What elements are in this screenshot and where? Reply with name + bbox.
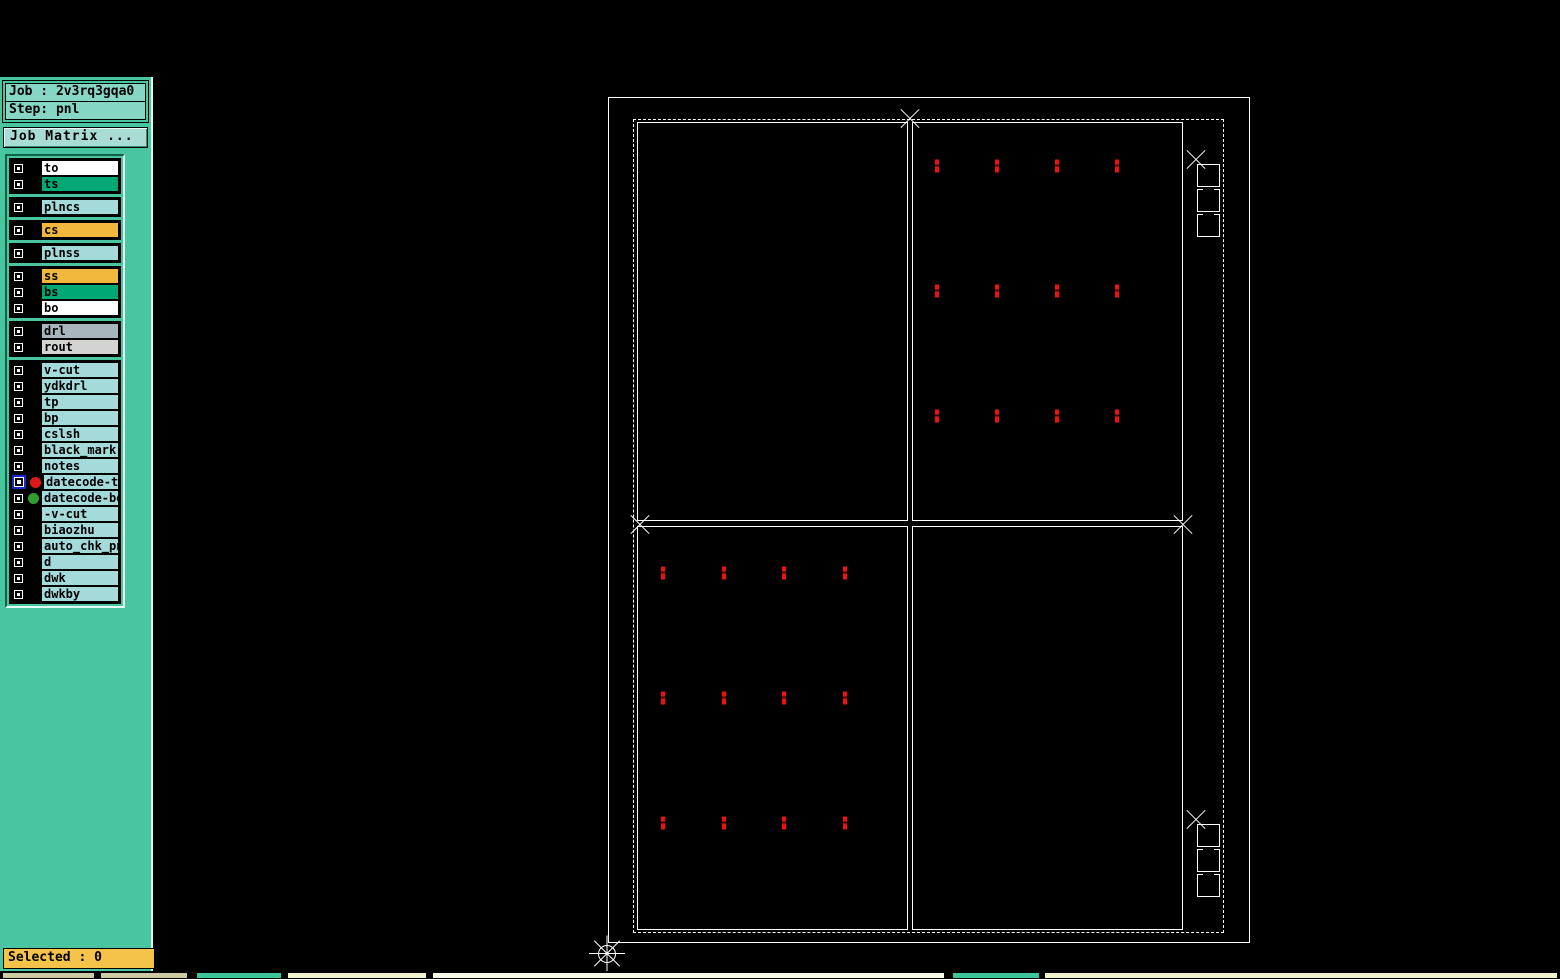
- layer-label[interactable]: to: [42, 161, 118, 175]
- layer-row-cslsh[interactable]: cslsh: [11, 426, 119, 442]
- layer-label[interactable]: biaozhu: [42, 523, 118, 537]
- fiducial-mark: [1055, 285, 1059, 298]
- bottom-strip: [0, 971, 1560, 979]
- layer-row-bs[interactable]: bs: [11, 284, 119, 300]
- layer-row-cs[interactable]: cs: [11, 222, 119, 238]
- layer-row-ss[interactable]: ss: [11, 268, 119, 284]
- coupon-square: [1197, 849, 1220, 872]
- clipped-toolbar-box[interactable]: [952, 972, 1040, 979]
- layer-checkbox[interactable]: [13, 271, 24, 282]
- layer-row-rout[interactable]: rout: [11, 339, 119, 355]
- layer-checkbox[interactable]: [13, 557, 24, 568]
- layer-row-v-cut[interactable]: v-cut: [11, 362, 119, 378]
- step-field: Step: pnl: [5, 101, 146, 120]
- layer-group: drlrout: [9, 321, 121, 357]
- layer-row-drl[interactable]: drl: [11, 323, 119, 339]
- layer-label[interactable]: notes: [42, 459, 118, 473]
- layer-checkbox[interactable]: [13, 179, 24, 190]
- clipped-toolbar-box[interactable]: [1044, 972, 1558, 979]
- fiducial-mark: [995, 160, 999, 173]
- layer-checkbox[interactable]: [13, 509, 24, 520]
- origin-marker-icon: [589, 936, 625, 972]
- alignment-star-icon: [1170, 512, 1196, 538]
- coupon-stack: [1197, 824, 1220, 899]
- fiducial-mark: [1055, 160, 1059, 173]
- fiducial-mark: [843, 567, 847, 580]
- sub-panel-outline: [912, 526, 1183, 930]
- layer-checkbox[interactable]: [13, 202, 24, 213]
- layer-checkbox[interactable]: [13, 445, 24, 456]
- clipped-toolbar-box[interactable]: [196, 972, 282, 979]
- fiducial-mark: [661, 567, 665, 580]
- layer-label[interactable]: tp: [42, 395, 118, 409]
- fiducial-mark: [661, 692, 665, 705]
- layer-label[interactable]: ss: [42, 269, 118, 283]
- layer-checkbox[interactable]: [13, 429, 24, 440]
- layer-row-plncs[interactable]: plncs: [11, 199, 119, 215]
- layer-label[interactable]: dwk: [42, 571, 118, 585]
- sidebar: Job : 2v3rq3gqa0 Step: pnl Job Matrix ..…: [0, 77, 153, 971]
- layer-label[interactable]: -v-cut: [42, 507, 118, 521]
- layer-row-to[interactable]: to: [11, 160, 119, 176]
- clipped-toolbar-box[interactable]: [287, 972, 427, 979]
- coupon-stack: [1197, 164, 1220, 239]
- layer-status-dot-slot: [26, 477, 44, 488]
- layer-group: plncs: [9, 197, 121, 217]
- layer-checkbox[interactable]: [13, 397, 24, 408]
- job-field: Job : 2v3rq3gqa0: [5, 83, 146, 102]
- coupon-square: [1197, 214, 1220, 237]
- coupon-square: [1197, 874, 1220, 897]
- layer-label[interactable]: ydkdrl: [42, 379, 118, 393]
- coupon-square: [1197, 189, 1220, 212]
- job-matrix-button[interactable]: Job Matrix ...: [3, 127, 148, 148]
- fiducial-mark: [935, 160, 939, 173]
- layer-checkbox[interactable]: [13, 365, 24, 376]
- fiducial-mark: [995, 410, 999, 423]
- alignment-star-icon: [897, 106, 923, 132]
- layer-row-ydkdrl[interactable]: ydkdrl: [11, 378, 119, 394]
- layer-status-dot-slot: [24, 493, 42, 504]
- layer-row-d[interactable]: d: [11, 554, 119, 570]
- layer-label[interactable]: black_mark: [42, 443, 118, 457]
- layer-row-ts[interactable]: ts: [11, 176, 119, 192]
- layer-group: v-cutydkdrltpbpcslshblack_marknotesdatec…: [9, 360, 121, 604]
- coupon-square: [1197, 164, 1220, 187]
- fiducial-mark: [782, 692, 786, 705]
- layer-label[interactable]: plncs: [42, 200, 118, 214]
- layer-checkbox[interactable]: [13, 461, 24, 472]
- layer-row-black_mark[interactable]: black_mark: [11, 442, 119, 458]
- selected-count: Selected : 0: [3, 948, 155, 969]
- sub-panel-outline: [637, 526, 908, 930]
- layer-checkbox[interactable]: [13, 326, 24, 337]
- fiducial-mark: [722, 567, 726, 580]
- fiducial-mark: [1115, 160, 1119, 173]
- layer-row-datecode-bo[interactable]: datecode-bo: [11, 490, 119, 506]
- layer-group: tots: [9, 158, 121, 194]
- layer-label[interactable]: bo: [42, 301, 118, 315]
- layer-label[interactable]: datecode-bo: [42, 491, 118, 505]
- layer-row-bp[interactable]: bp: [11, 410, 119, 426]
- layer-checkbox[interactable]: [13, 303, 24, 314]
- alignment-star-icon: [627, 512, 653, 538]
- fiducial-mark: [935, 410, 939, 423]
- layer-status-dot: [30, 477, 41, 488]
- layer-group: plnss: [9, 243, 121, 263]
- layer-row--v-cut[interactable]: -v-cut: [11, 506, 119, 522]
- clipped-toolbar-box[interactable]: [100, 972, 188, 979]
- layer-row-auto_chk_pnl[interactable]: auto_chk_pnl: [11, 538, 119, 554]
- layer-checkbox[interactable]: [13, 541, 24, 552]
- layer-checkbox[interactable]: [13, 493, 24, 504]
- layer-checkbox[interactable]: [13, 225, 24, 236]
- fiducial-mark: [722, 817, 726, 830]
- layer-row-dwkby[interactable]: dwkby: [11, 586, 119, 602]
- layer-checkbox[interactable]: [13, 342, 24, 353]
- layer-row-bo[interactable]: bo: [11, 300, 119, 316]
- fiducial-mark: [782, 567, 786, 580]
- fiducial-mark: [782, 817, 786, 830]
- layer-checkbox[interactable]: [13, 573, 24, 584]
- coupon-square: [1197, 824, 1220, 847]
- layer-checkbox[interactable]: [13, 589, 24, 600]
- drawing-canvas[interactable]: [0, 0, 1560, 979]
- sub-panel-outline: [637, 122, 908, 521]
- layer-label[interactable]: dwkby: [42, 587, 118, 601]
- layer-label[interactable]: v-cut: [42, 363, 118, 377]
- layer-label[interactable]: auto_chk_pnl: [42, 539, 118, 553]
- layer-checkbox[interactable]: [12, 475, 26, 489]
- layer-row-biaozhu[interactable]: biaozhu: [11, 522, 119, 538]
- layer-group: ssbsbo: [9, 266, 121, 318]
- clipped-toolbar-box[interactable]: [2, 972, 95, 979]
- layer-label[interactable]: bp: [42, 411, 118, 425]
- layer-label[interactable]: ts: [42, 177, 118, 191]
- layer-list: totsplncscsplnssssbsbodrlroutv-cutydkdrl…: [5, 154, 125, 608]
- fiducial-mark: [995, 285, 999, 298]
- sub-panel-outline: [912, 122, 1183, 521]
- layer-checkbox[interactable]: [13, 287, 24, 298]
- fiducial-mark: [843, 817, 847, 830]
- fiducial-mark: [722, 692, 726, 705]
- layer-label[interactable]: drl: [42, 324, 118, 338]
- layer-label[interactable]: cslsh: [42, 427, 118, 441]
- layer-row-dwk[interactable]: dwk: [11, 570, 119, 586]
- fiducial-mark: [935, 285, 939, 298]
- layer-label[interactable]: d: [42, 555, 118, 569]
- fiducial-mark: [1055, 410, 1059, 423]
- layer-row-notes[interactable]: notes: [11, 458, 119, 474]
- layer-label[interactable]: bs: [42, 285, 118, 299]
- layer-checkbox[interactable]: [13, 163, 24, 174]
- layer-checkbox[interactable]: [13, 248, 24, 259]
- layer-row-tp[interactable]: tp: [11, 394, 119, 410]
- clipped-toolbar-box[interactable]: [432, 972, 945, 979]
- fiducial-mark: [661, 817, 665, 830]
- layer-label[interactable]: plnss: [42, 246, 118, 260]
- fiducial-mark: [1115, 285, 1119, 298]
- fiducial-mark: [843, 692, 847, 705]
- layer-checkbox[interactable]: [13, 381, 24, 392]
- layer-group: cs: [9, 220, 121, 240]
- layer-row-plnss[interactable]: plnss: [11, 245, 119, 261]
- job-panel: Job : 2v3rq3gqa0 Step: pnl: [2, 80, 149, 123]
- layer-status-dot: [28, 493, 39, 504]
- layer-label[interactable]: rout: [42, 340, 118, 354]
- layer-checkbox[interactable]: [13, 413, 24, 424]
- layer-checkbox[interactable]: [13, 525, 24, 536]
- layer-row-datecode-top[interactable]: datecode-top: [11, 474, 119, 490]
- application-window: Graphic Editor 9.07b2 (00@HY-HYCAM-PC148…: [0, 0, 1560, 979]
- layer-label[interactable]: datecode-top: [44, 475, 118, 489]
- fiducial-mark: [1115, 410, 1119, 423]
- layer-label[interactable]: cs: [42, 223, 118, 237]
